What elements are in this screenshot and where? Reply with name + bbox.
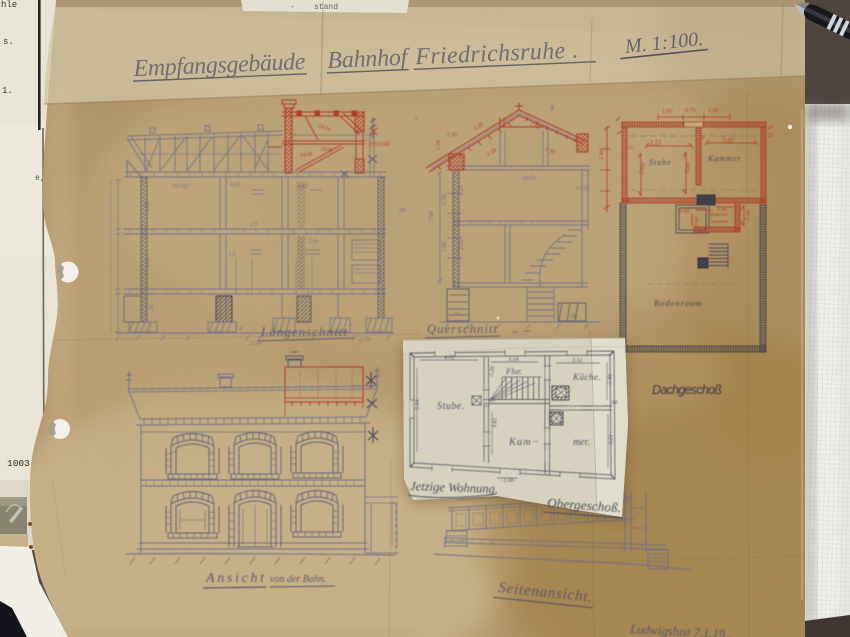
svg-text:10/16: 10/16 bbox=[575, 186, 589, 192]
svg-text:- stand: - stand bbox=[290, 3, 338, 12]
svg-text:−1.0−: −1.0− bbox=[305, 239, 321, 245]
svg-text:1.76: 1.76 bbox=[436, 140, 442, 150]
svg-text:Räucher: Räucher bbox=[709, 212, 729, 218]
svg-text:Kammer: Kammer bbox=[707, 154, 742, 163]
svg-text:1.05: 1.05 bbox=[662, 109, 673, 115]
svg-text:25: 25 bbox=[768, 134, 774, 139]
svg-text:.: . bbox=[572, 37, 579, 63]
svg-text:1.4: 1.4 bbox=[235, 325, 243, 332]
svg-text:0.90: 0.90 bbox=[679, 209, 690, 215]
svg-text:Ansicht: Ansicht bbox=[205, 571, 265, 586]
svg-text:4.02: 4.02 bbox=[444, 354, 455, 361]
svg-text:3.14: 3.14 bbox=[507, 356, 519, 363]
svg-text:7.08: 7.08 bbox=[429, 212, 435, 223]
svg-text:hle: hle bbox=[1, 0, 17, 10]
svg-text:4.50: 4.50 bbox=[297, 183, 308, 190]
svg-text:mer.: mer. bbox=[573, 437, 590, 448]
svg-text:105/150: 105/150 bbox=[368, 141, 390, 148]
svg-text:Stube: Stube bbox=[649, 158, 672, 167]
svg-text:.30: .30 bbox=[149, 305, 155, 313]
svg-text:s.: s. bbox=[3, 37, 14, 47]
svg-text:0.80: 0.80 bbox=[685, 162, 692, 173]
svg-text:25: 25 bbox=[628, 146, 634, 151]
svg-text:Dachgeschoß: Dachgeschoß bbox=[652, 383, 722, 397]
svg-text:−1.00−: −1.00− bbox=[500, 478, 517, 484]
svg-text:Küche.: Küche. bbox=[572, 372, 601, 382]
svg-text:X: X bbox=[549, 104, 555, 112]
svg-text:70/162: 70/162 bbox=[172, 184, 189, 190]
svg-text:1.: 1. bbox=[2, 86, 13, 96]
svg-text:1.30: 1.30 bbox=[447, 132, 457, 138]
svg-text:3.33: 3.33 bbox=[648, 139, 662, 147]
svg-text:1.20: 1.20 bbox=[459, 186, 465, 197]
svg-text:v.: v. bbox=[415, 117, 418, 122]
svg-text:2.5: 2.5 bbox=[250, 222, 258, 228]
svg-text:3.51: 3.51 bbox=[571, 358, 583, 364]
svg-text:2.02: 2.02 bbox=[459, 240, 465, 251]
svg-text:2.90: 2.90 bbox=[145, 202, 151, 213]
svg-text:.12: .12 bbox=[698, 136, 705, 141]
svg-text:-90: -90 bbox=[610, 400, 618, 406]
svg-text:2.5: 2.5 bbox=[228, 252, 236, 258]
svg-text:−.70−: −.70− bbox=[448, 312, 464, 318]
svg-text:3.00: 3.00 bbox=[145, 258, 151, 270]
svg-text:10/20: 10/20 bbox=[522, 176, 536, 182]
svg-text:Flur.: Flur. bbox=[505, 366, 522, 376]
svg-text:4.50: 4.50 bbox=[230, 181, 241, 188]
svg-text:Längenschnitt: Längenschnitt bbox=[260, 324, 347, 339]
svg-text:3.61: 3.61 bbox=[492, 417, 499, 429]
svg-text:2.10: 2.10 bbox=[250, 341, 261, 347]
svg-text:1003: 1003 bbox=[7, 458, 30, 469]
svg-text:2.82: 2.82 bbox=[722, 137, 735, 145]
svg-text:1.80: 1.80 bbox=[442, 242, 448, 253]
svg-text:.90: .90 bbox=[398, 208, 406, 214]
svg-text:1.05: 1.05 bbox=[708, 108, 719, 114]
svg-text:14/16: 14/16 bbox=[299, 151, 312, 159]
svg-text:kammer: kammer bbox=[711, 219, 730, 225]
svg-text:Bodenraum: Bodenraum bbox=[654, 298, 703, 308]
svg-text:von der Bahn.: von der Bahn. bbox=[270, 574, 326, 585]
svg-text:.96: .96 bbox=[570, 314, 578, 320]
svg-text:2.40: 2.40 bbox=[598, 150, 605, 160]
svg-text:1.50: 1.50 bbox=[442, 195, 448, 206]
svg-text:3.21: 3.21 bbox=[608, 434, 615, 446]
svg-text:Kam−: Kam− bbox=[508, 437, 540, 448]
svg-text:2.40: 2.40 bbox=[606, 374, 614, 385]
svg-text:Querschnitt: Querschnitt bbox=[427, 322, 498, 336]
svg-text:Stube.: Stube. bbox=[437, 401, 465, 412]
svg-text:−2.70−: −2.70− bbox=[355, 337, 374, 343]
svg-text:0.76: 0.76 bbox=[685, 108, 696, 114]
svg-text:5.04: 5.04 bbox=[414, 400, 421, 411]
